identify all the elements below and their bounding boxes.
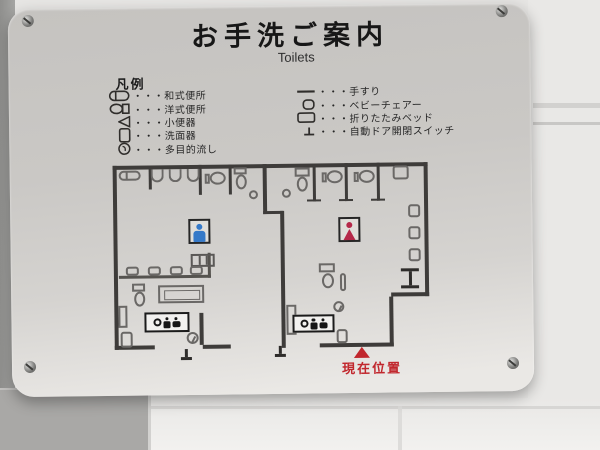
stall-partition <box>313 163 316 201</box>
tile-grout-line <box>148 406 600 409</box>
western-toilet-icon <box>236 174 247 189</box>
baby-changing-icon <box>310 318 317 329</box>
mens-restroom-sign <box>188 219 210 244</box>
toilet-tank <box>295 168 310 177</box>
baby-chair-icon <box>409 248 421 261</box>
washbasin-icon <box>249 190 258 199</box>
urinal-icon <box>187 169 200 182</box>
accessible-toilet-sign <box>144 312 189 333</box>
legend-item: ・・・自動ドア開閉スイッチ <box>290 123 455 138</box>
wall <box>263 164 268 214</box>
partition-foot <box>371 199 385 201</box>
western-toilet-icon <box>359 170 375 183</box>
western-toilet-icon <box>327 170 343 183</box>
restroom-guide-plaque: お手洗ご案内 Toilets 凡例 ・・・和式便所 ・・・洋式便所 <box>8 3 535 397</box>
wall <box>391 292 429 296</box>
photo-of-restroom-sign: お手洗ご案内 Toilets 凡例 ・・・和式便所 ・・・洋式便所 <box>0 0 600 450</box>
accessible-toilet-sign <box>292 314 334 333</box>
wall <box>389 297 394 347</box>
bed-rung <box>206 256 208 265</box>
tile-joint-line <box>533 122 600 125</box>
multipurpose-sink-icon <box>333 301 344 312</box>
legend-right-column: ・・・手すり ・・・ベビーチェアー ・・・折りたたみベッド ・・・自動ドア開閉ス… <box>290 83 455 139</box>
handrail-icon <box>340 273 346 291</box>
baby-chair-icon <box>408 226 420 239</box>
floor-plan: 現在位置 <box>104 154 437 382</box>
baby-chair-icon <box>319 318 327 328</box>
wheelchair-icon <box>153 318 161 326</box>
folding-bed-icon <box>290 112 316 124</box>
gray-tile <box>0 388 148 450</box>
washbasin-icon <box>337 329 348 343</box>
western-toilet-icon <box>297 177 308 192</box>
legend-item-label: ・・・自動ドア開閉スイッチ <box>318 122 455 139</box>
toilet-tank <box>132 284 145 292</box>
multipurpose-sink-icon <box>105 142 131 156</box>
washbasin-icon <box>121 332 133 348</box>
baby-chair-icon <box>393 165 409 179</box>
bed-rung <box>199 256 201 265</box>
western-toilet-icon <box>322 273 334 288</box>
toilet-tank <box>319 263 335 272</box>
urinal-icon <box>169 169 182 182</box>
wheelchair-icon <box>300 320 308 328</box>
tile-joint-line <box>533 103 600 108</box>
baby-chair-icon <box>172 317 180 327</box>
urinal-icon <box>151 169 164 182</box>
man-icon <box>193 231 205 242</box>
tiled-wall-right <box>528 0 600 450</box>
changing-bed <box>158 285 204 304</box>
squat-toilet-icon <box>105 89 131 101</box>
baby-changing-icon <box>163 317 170 328</box>
urinal-icon <box>105 116 131 128</box>
multipurpose-sink-icon <box>187 332 199 344</box>
western-toilet-icon <box>210 172 226 185</box>
wall <box>280 211 286 348</box>
squat-toilet-icon <box>119 171 141 181</box>
legend-item-label: ・・・多目的流し <box>133 140 217 156</box>
baby-chair-icon <box>290 99 316 111</box>
legend-left-column: ・・・和式便所 ・・・洋式便所 ・・・小便器 ・・・洗面器 <box>105 88 218 156</box>
western-toilet-icon <box>134 292 145 307</box>
changing-bed-inner <box>164 290 200 300</box>
auto-door-switch-icon <box>290 126 316 137</box>
tile-grout-line <box>398 406 402 450</box>
washbasin-icon <box>148 266 161 275</box>
sink-mark <box>338 305 342 311</box>
wall <box>199 313 203 345</box>
western-toilet-icon <box>105 103 131 115</box>
auto-door-switch-icon <box>181 349 192 360</box>
stall-partition <box>229 164 232 194</box>
partition-foot <box>307 199 321 201</box>
man-icon <box>196 224 202 230</box>
baby-chair-icon <box>408 204 420 217</box>
washbasin-icon <box>170 266 183 275</box>
screw-icon <box>24 361 36 373</box>
washbasin-icon <box>190 266 203 275</box>
woman-icon <box>343 229 355 240</box>
partition-foot <box>339 199 353 201</box>
current-location-label: 現在位置 <box>329 357 415 377</box>
washbasin-icon <box>282 189 291 198</box>
sink-mark <box>191 336 196 343</box>
wall-fixture <box>118 306 127 328</box>
stall-partition <box>377 163 380 201</box>
wall <box>424 162 430 296</box>
folding-bed-icon <box>401 268 419 288</box>
screw-icon <box>507 357 519 369</box>
tile-grout-line <box>148 388 151 450</box>
handrail-icon <box>290 86 316 96</box>
wall <box>203 345 231 349</box>
legend-item: ・・・多目的流し <box>105 141 217 156</box>
auto-door-switch-icon <box>275 346 286 357</box>
stall-partition <box>345 163 348 201</box>
womens-restroom-sign <box>338 217 360 242</box>
woman-icon <box>346 222 352 228</box>
washbasin-icon <box>126 267 139 276</box>
current-location-marker <box>354 347 370 358</box>
squat-toilet-detail <box>126 172 128 180</box>
